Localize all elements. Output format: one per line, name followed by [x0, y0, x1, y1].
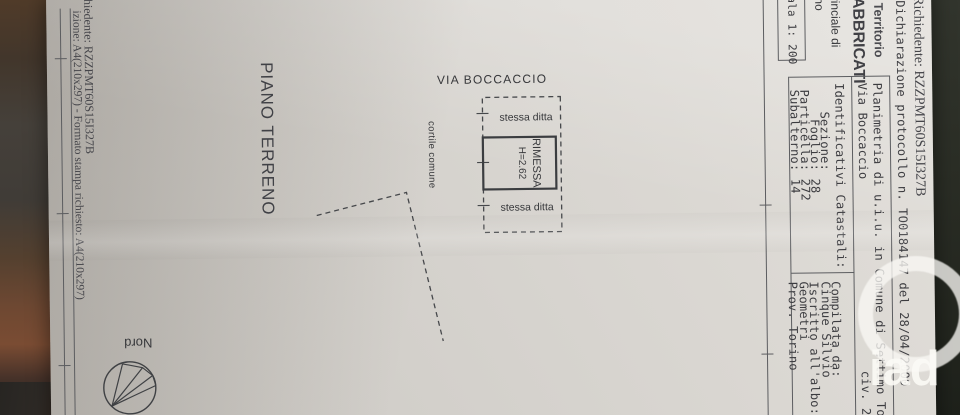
- cadastral-document-sheet: Richiedente: RZZPMT60S15I327B Dichiarazi…: [46, 0, 939, 415]
- courtyard-label: cortile comune: [426, 121, 438, 189]
- street-name-label: VIA BOCCACCIO: [432, 72, 552, 87]
- floor-level-label: PIANO TERRENO: [256, 62, 278, 216]
- room-height-label: H=2.62: [516, 133, 528, 193]
- iad-watermark: iad: [869, 345, 940, 394]
- room-name-label: RIMESSA: [530, 133, 543, 193]
- north-compass-icon: [104, 362, 157, 415]
- adjacent-unit-label-right: stessa ditta: [482, 200, 572, 214]
- adjacent-unit-label-left: stessa ditta: [481, 110, 571, 124]
- photo-of-cadastral-plan: Richiedente: RZZPMT60S15I327B Dichiarazi…: [0, 0, 960, 415]
- north-label: Nord: [118, 334, 158, 350]
